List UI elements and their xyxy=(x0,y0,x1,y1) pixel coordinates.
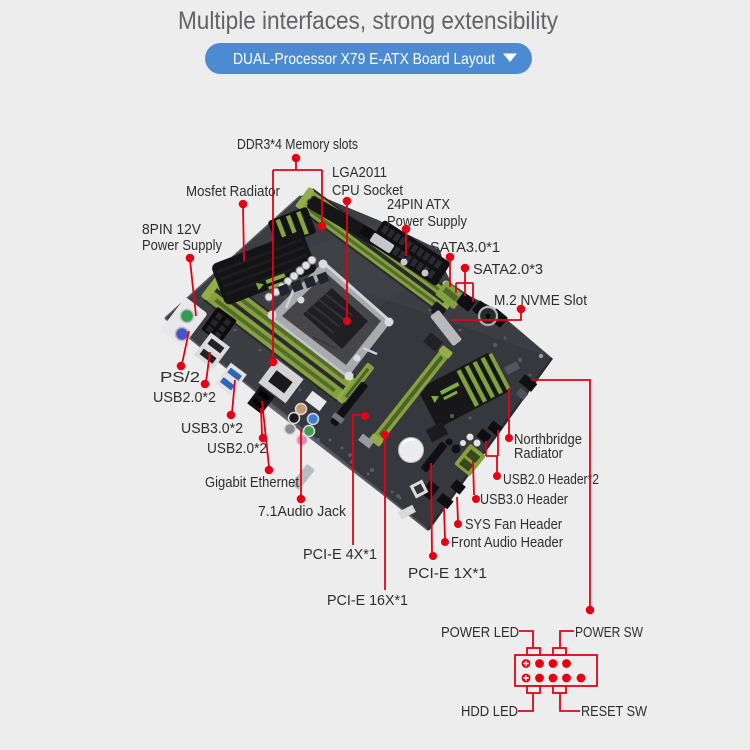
svg-text:7.1Audio Jack: 7.1Audio Jack xyxy=(258,504,347,520)
svg-text:PS/2: PS/2 xyxy=(160,370,200,386)
svg-text:POWER SW: POWER SW xyxy=(575,625,643,641)
svg-text:Gigabit Ethernet: Gigabit Ethernet xyxy=(205,475,299,491)
svg-text:Multiple interfaces, strong ex: Multiple interfaces, strong extensibilit… xyxy=(178,7,558,35)
svg-text:Power Supply: Power Supply xyxy=(142,238,223,254)
svg-text:SATA3.0*1: SATA3.0*1 xyxy=(430,240,500,256)
svg-text:POWER LED: POWER LED xyxy=(441,625,519,641)
svg-text:Radiator: Radiator xyxy=(514,446,563,462)
svg-text:USB2.0*2: USB2.0*2 xyxy=(153,390,216,406)
svg-text:SYS Fan Header: SYS Fan Header xyxy=(465,517,562,533)
svg-text:PCI-E 4X*1: PCI-E 4X*1 xyxy=(303,547,377,563)
svg-text:Mosfet Radiator: Mosfet Radiator xyxy=(186,184,280,200)
svg-text:Power Supply: Power Supply xyxy=(387,214,468,230)
svg-text:USB2.0*2: USB2.0*2 xyxy=(207,441,267,457)
svg-text:DDR3*4 Memory slots: DDR3*4 Memory slots xyxy=(237,137,358,153)
svg-text:RESET SW: RESET SW xyxy=(581,704,647,720)
svg-text:M.2 NVME Slot: M.2 NVME Slot xyxy=(494,293,587,309)
svg-text:24PIN ATX: 24PIN ATX xyxy=(387,197,450,213)
svg-text:HDD LED: HDD LED xyxy=(461,704,518,720)
svg-text:PCI-E 1X*1: PCI-E 1X*1 xyxy=(408,566,487,582)
svg-text:LGA2011: LGA2011 xyxy=(332,165,387,181)
svg-text:8PIN 12V: 8PIN 12V xyxy=(142,222,201,238)
svg-text:USB2.0 Header*2: USB2.0 Header*2 xyxy=(503,472,599,488)
svg-text:SATA2.0*3: SATA2.0*3 xyxy=(473,262,543,278)
svg-text:USB3.0 Header: USB3.0 Header xyxy=(480,492,568,508)
svg-text:Front Audio Header: Front Audio Header xyxy=(451,535,563,551)
svg-text:DUAL-Processor X79 E-ATX Board: DUAL-Processor X79 E-ATX Board Layout xyxy=(233,51,495,68)
svg-text:USB3.0*2: USB3.0*2 xyxy=(181,421,243,437)
svg-text:PCI-E 16X*1: PCI-E 16X*1 xyxy=(327,593,408,609)
